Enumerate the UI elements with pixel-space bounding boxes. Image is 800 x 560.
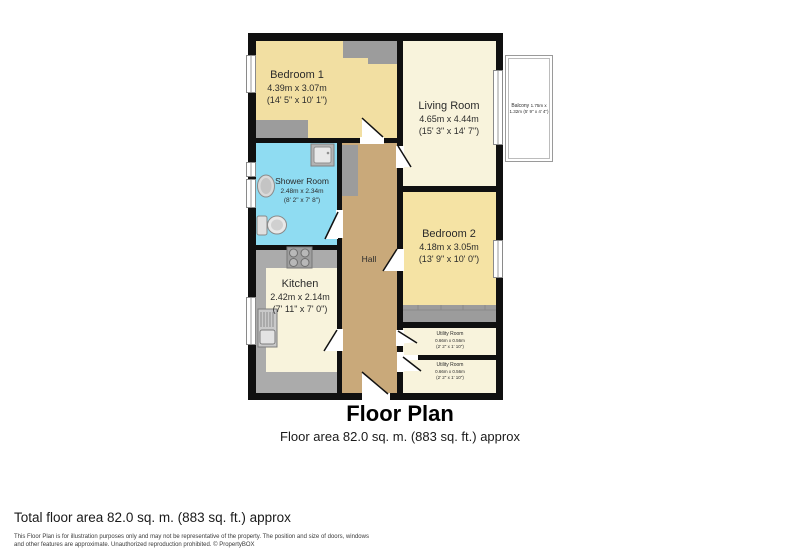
balcony-label: Balcony 1.75m x 1.32m (5' 9" x 4' 4") [509, 103, 549, 115]
living-imperial: (15' 3" x 14' 7") [389, 125, 509, 137]
shower-imperial: (8' 2" x 7' 8") [252, 196, 352, 205]
bedroom1-wardrobe-bottom [256, 120, 308, 138]
shower-name: Shower Room [252, 176, 352, 187]
bedroom1-wardrobe-top-step [368, 58, 397, 64]
bedroom1-metric: 4.39m x 3.07m [237, 82, 357, 94]
kitchen-name: Kitchen [240, 277, 360, 291]
bedroom1-wardrobe-top [343, 41, 397, 58]
shower-metric: 2.48m x 2.34m [252, 187, 352, 196]
utility1-name: Utility Room [411, 331, 489, 338]
bedroom2-metric: 4.18m x 3.05m [389, 241, 509, 253]
balcony-outline: Balcony 1.75m x 1.32m (5' 9" x 4' 4") [505, 55, 553, 162]
disclaimer-text: This Floor Plan is for illustration purp… [14, 533, 634, 549]
page-subtitle: Floor area 82.0 sq. m. (883 sq. ft.) app… [0, 429, 800, 444]
bedroom1-label: Bedroom 1 4.39m x 3.07m (14' 5" x 10' 1"… [237, 68, 357, 106]
bedroom2-imperial: (13' 9" x 10' 0") [389, 253, 509, 265]
bedroom1-imperial: (14' 5" x 10' 1") [237, 94, 357, 106]
shower-label: Shower Room 2.48m x 2.34m (8' 2" x 7' 8"… [252, 176, 352, 205]
utility2-label: Utility Room 0.66m x 0.56m (2' 2" x 1' 1… [411, 362, 489, 381]
kitchen-metric: 2.42m x 2.14m [240, 291, 360, 303]
total-floor-area-text: Total floor area 82.0 sq. m. (883 sq. ft… [14, 510, 614, 525]
bedroom2-name: Bedroom 2 [389, 227, 509, 241]
disclaimer-line2: and other features are approximate. Unau… [14, 542, 255, 548]
kitchen-imperial: (7' 11" x 7' 0") [240, 303, 360, 315]
living-metric: 4.65m x 4.44m [389, 113, 509, 125]
disclaimer-line1: This Floor Plan is for illustration purp… [14, 534, 369, 540]
kitchen-label: Kitchen 2.42m x 2.14m (7' 11" x 7' 0") [240, 277, 360, 315]
hall-label: Hall [343, 254, 395, 264]
hall-name: Hall [343, 254, 395, 264]
page-title: Floor Plan [0, 401, 800, 427]
utility1-imperial: (2' 2" x 1' 10") [411, 344, 489, 350]
utility2-name: Utility Room [411, 362, 489, 369]
balcony-floor: Balcony 1.75m x 1.32m (5' 9" x 4' 4") [508, 58, 550, 159]
balcony-imperial: (5' 9" x 4' 4") [523, 109, 548, 114]
bedroom2-label: Bedroom 2 4.18m x 3.05m (13' 9" x 10' 0"… [389, 227, 509, 265]
floor-plan-page: Balcony 1.75m x 1.32m (5' 9" x 4' 4") [0, 0, 800, 560]
living-name: Living Room [389, 99, 509, 113]
living-label: Living Room 4.65m x 4.44m (15' 3" x 14' … [389, 99, 509, 137]
window-shower-upper [246, 162, 256, 177]
utility2-imperial: (2' 2" x 1' 10") [411, 375, 489, 381]
utility1-label: Utility Room 0.66m x 0.56m (2' 2" x 1' 1… [411, 331, 489, 350]
bedroom1-name: Bedroom 1 [237, 68, 357, 82]
bedroom2-wardrobe [403, 305, 496, 322]
